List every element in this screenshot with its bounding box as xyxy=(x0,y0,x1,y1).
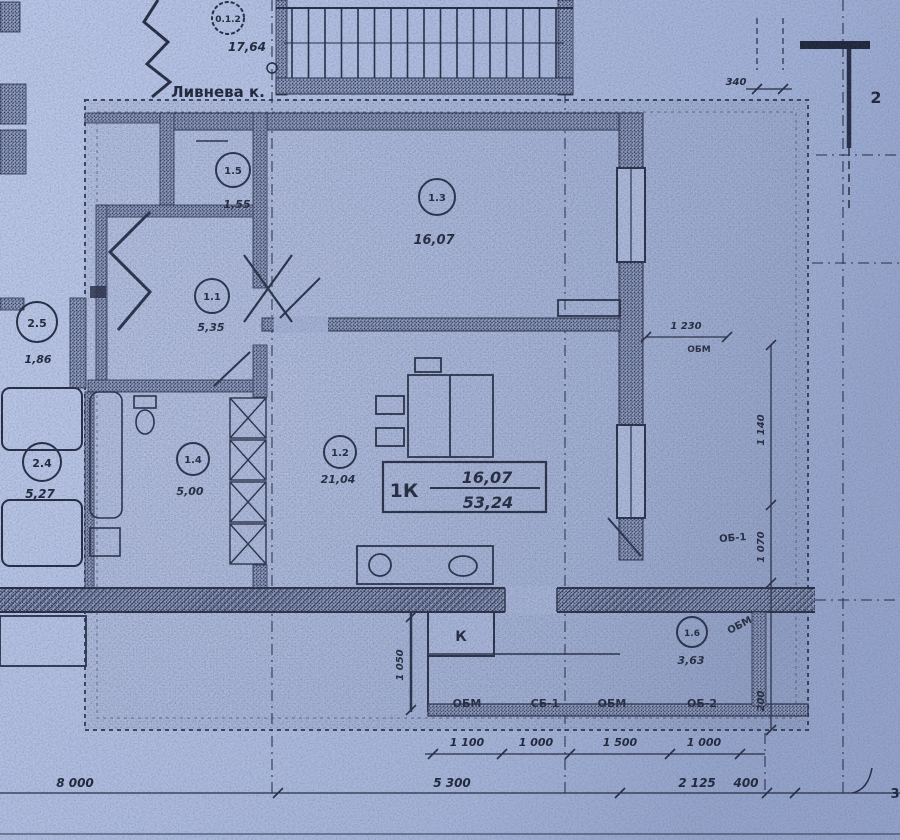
plan-grain xyxy=(85,100,808,730)
blueprint-canvas: 0.1.2 17,64 Ливнева к. 1.5 1,55 1.3 16,0… xyxy=(0,0,900,840)
floorplan-scan: 0.1.2 17,64 Ливнева к. 1.5 1,55 1.3 16,0… xyxy=(0,0,900,840)
